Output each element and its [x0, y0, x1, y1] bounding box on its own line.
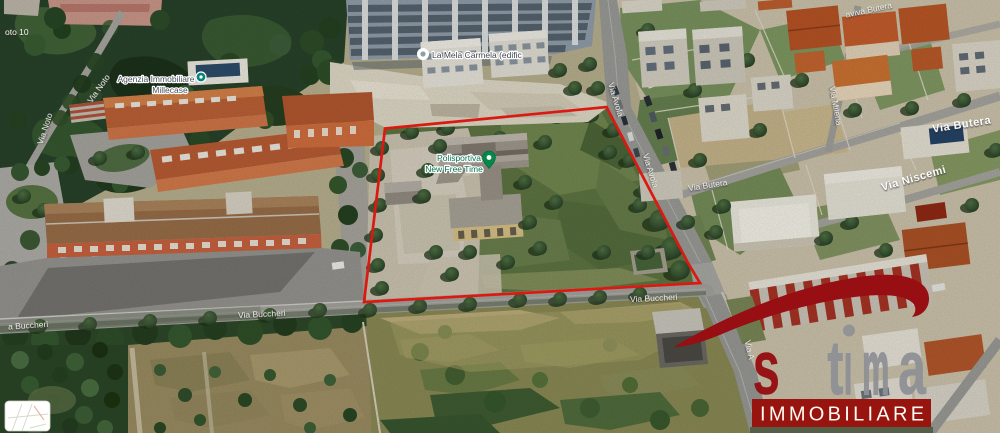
- svg-text:Polisportiva: Polisportiva: [437, 153, 481, 163]
- svg-text:New Free Time: New Free Time: [425, 164, 483, 174]
- svg-text:m: m: [862, 327, 889, 411]
- svg-text:oto 10: oto 10: [5, 27, 29, 37]
- svg-text:ı: ı: [844, 326, 853, 411]
- svg-text:t: t: [827, 327, 843, 411]
- svg-text:s: s: [753, 325, 780, 411]
- svg-text:IMMOBILIARE: IMMOBILIARE: [760, 404, 927, 426]
- svg-text:La Mela Carmela (edific: La Mela Carmela (edific: [432, 50, 523, 60]
- svg-text:a: a: [898, 326, 927, 411]
- svg-text:Agenzia Immobiliare: Agenzia Immobiliare: [117, 74, 194, 84]
- svg-text:Millecase: Millecase: [152, 85, 188, 95]
